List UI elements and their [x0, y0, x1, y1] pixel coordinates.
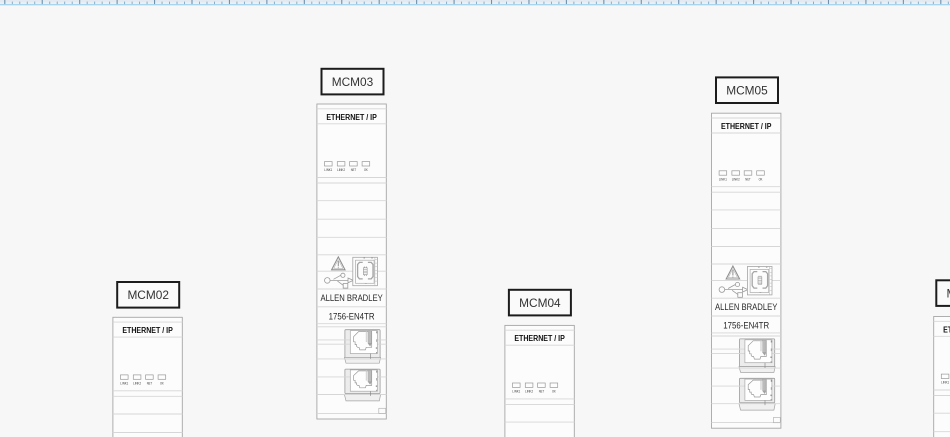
svg-text:LINK1: LINK1 — [719, 177, 727, 181]
svg-text:ETHERNET / IP: ETHERNET / IP — [122, 326, 173, 335]
svg-text:MCM06: MCM06 — [947, 286, 950, 300]
svg-text:ALLEN BRADLEY: ALLEN BRADLEY — [715, 302, 777, 312]
svg-text:LINK1: LINK1 — [120, 382, 128, 386]
svg-text:LINK1: LINK1 — [324, 168, 332, 172]
svg-text:LINK1: LINK1 — [512, 390, 520, 394]
svg-text:OK: OK — [552, 390, 556, 394]
svg-text:NET: NET — [351, 168, 356, 172]
svg-text:ETHERNET / IP: ETHERNET / IP — [514, 334, 565, 343]
svg-text:ALLEN BRADLEY: ALLEN BRADLEY — [320, 293, 382, 303]
svg-text:1756-EN4TR: 1756-EN4TR — [723, 321, 769, 331]
svg-text:ETHERNET / IP: ETHERNET / IP — [721, 122, 772, 131]
svg-text:MCM05: MCM05 — [726, 84, 768, 98]
svg-text:LINK2: LINK2 — [525, 390, 533, 394]
svg-text:MCM03: MCM03 — [332, 75, 374, 89]
svg-text:NET: NET — [539, 390, 544, 394]
svg-text:MCM02: MCM02 — [127, 288, 169, 302]
svg-text:OK: OK — [759, 177, 763, 181]
svg-text:OK: OK — [364, 168, 368, 172]
svg-text:LINK2: LINK2 — [133, 382, 141, 386]
svg-text:ETHERNET / IP: ETHERNET / IP — [943, 325, 950, 334]
svg-text:NET: NET — [745, 177, 750, 181]
svg-text:LINK2: LINK2 — [337, 168, 345, 172]
svg-text:MCM04: MCM04 — [519, 296, 561, 310]
svg-text:OK: OK — [160, 382, 164, 386]
svg-text:LINK2: LINK2 — [732, 177, 740, 181]
svg-text:LINK1: LINK1 — [941, 381, 949, 385]
svg-text:1756-EN4TR: 1756-EN4TR — [329, 311, 375, 321]
svg-text:NET: NET — [147, 382, 152, 386]
svg-text:ETHERNET / IP: ETHERNET / IP — [326, 113, 377, 122]
